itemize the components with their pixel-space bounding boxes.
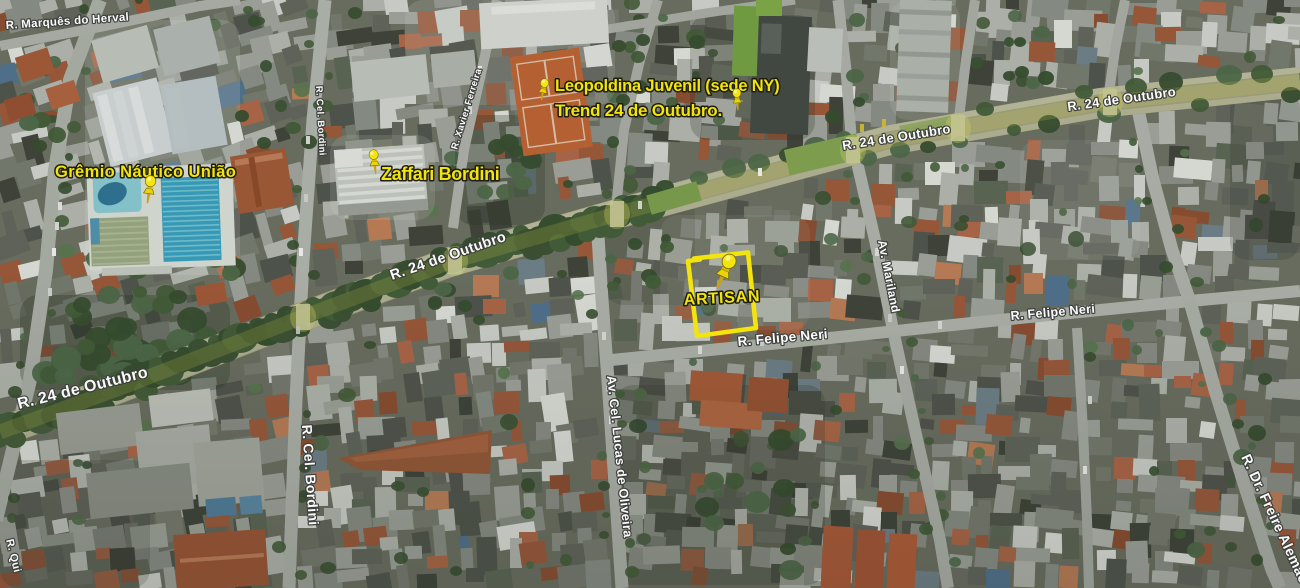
svg-text:Zaffari Bordini: Zaffari Bordini — [381, 164, 500, 184]
svg-text:Leopoldina Juvenil (sede NY): Leopoldina Juvenil (sede NY) — [555, 77, 780, 95]
svg-text:Trend 24 de Outubro.: Trend 24 de Outubro. — [555, 101, 722, 120]
